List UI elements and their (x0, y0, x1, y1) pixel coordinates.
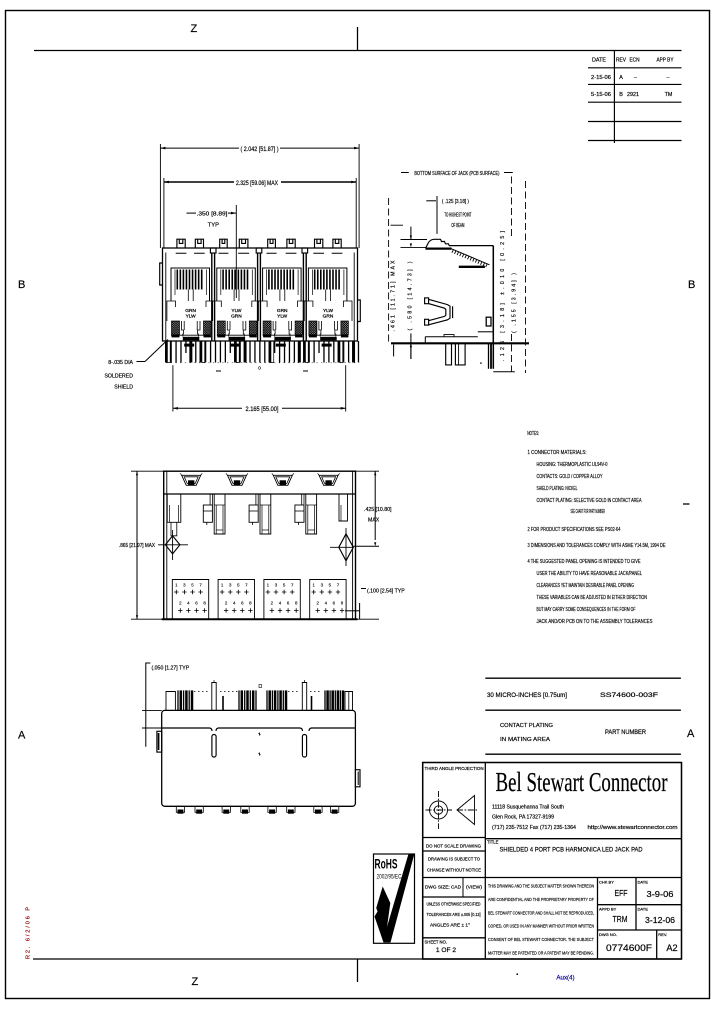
svg-text:YLW: YLW (323, 308, 334, 314)
svg-text:ECN: ECN (630, 58, 640, 64)
svg-text:MAX: MAX (368, 518, 380, 524)
svg-text:SS74600-003F: SS74600-003F (600, 692, 658, 699)
svg-text:4: 4 (187, 601, 190, 606)
svg-text:TOLERANCES ARE ±.005 [0.13]: TOLERANCES ARE ±.005 [0.13] (427, 912, 481, 917)
svg-text:B: B (688, 279, 695, 291)
svg-text:A: A (18, 730, 26, 742)
svg-text:1 OF 2: 1 OF 2 (436, 947, 456, 954)
svg-text:GRN: GRN (323, 314, 334, 320)
svg-text:4: 4 (233, 601, 236, 606)
svg-text:TM: TM (665, 92, 673, 98)
svg-text:SOLDERED: SOLDERED (104, 374, 133, 380)
svg-text:http://www.stewartconnector.co: http://www.stewartconnector.com (588, 825, 679, 831)
svg-text:3-9-06: 3-9-06 (647, 890, 674, 899)
svg-text:–: – (667, 75, 670, 81)
svg-text:2002/95/EC: 2002/95/EC (377, 875, 403, 881)
svg-text:THIRD ANGLE PROJECTION: THIRD ANGLE PROJECTION (425, 766, 484, 771)
svg-text:SHIELD PLATING: NICKEL: SHIELD PLATING: NICKEL (537, 486, 578, 492)
svg-text:IN MATING AREA: IN MATING AREA (500, 737, 550, 743)
svg-text:COPIED, OR USED IN ANY MANNER: COPIED, OR USED IN ANY MANNER WITHOUT PR… (488, 924, 594, 929)
svg-text:4: 4 (279, 601, 282, 606)
svg-text:SHIELD: SHIELD (114, 385, 133, 391)
svg-text:6: 6 (241, 601, 244, 606)
svg-text:YLW: YLW (277, 314, 288, 320)
svg-text:UNLESS OTHERWISE SPECIFIED: UNLESS OTHERWISE SPECIFIED (427, 902, 481, 907)
svg-text:0: 0 (258, 366, 261, 371)
svg-text:EFF: EFF (615, 889, 628, 898)
svg-text:RoHS: RoHS (375, 857, 398, 872)
svg-text:ARE CONFIDENTIAL AND THE PROPR: ARE CONFIDENTIAL AND THE PROPRIETARY PRO… (488, 897, 594, 902)
svg-text:(VIEW): (VIEW) (466, 885, 482, 891)
svg-text:DATE: DATE (638, 907, 649, 912)
svg-text:8-.035 DIA: 8-.035 DIA (108, 360, 133, 366)
svg-text:APPD BY: APPD BY (599, 907, 617, 912)
svg-text:BEL STEWART CONNECTOR AND SHAL: BEL STEWART CONNECTOR AND SHALL NOT BE R… (488, 910, 594, 915)
svg-text:1: 1 (312, 583, 315, 588)
svg-text:Glen Rock, PA 17327-9199: Glen Rock, PA 17327-9199 (492, 815, 554, 821)
svg-text:7: 7 (291, 583, 294, 588)
svg-text:4: 4 (325, 601, 328, 606)
svg-text:7: 7 (199, 583, 202, 588)
svg-text:3-12-06: 3-12-06 (645, 916, 675, 925)
svg-text:(.100 [2.54] TYP: (.100 [2.54] TYP (367, 589, 405, 595)
svg-text:NOTES:: NOTES: (527, 431, 539, 437)
svg-text:BOTTOM SURFACE OF JACK (PCB SU: BOTTOM SURFACE OF JACK (PCB SURFACE) (414, 171, 499, 177)
svg-text:A2: A2 (666, 943, 677, 953)
svg-text:A: A (687, 728, 695, 740)
svg-text:2.165 [55.00]: 2.165 [55.00] (246, 407, 279, 413)
svg-text:B: B (619, 92, 623, 98)
svg-text:.350 [8.89]: .350 [8.89] (197, 212, 228, 218)
svg-text:30 MICRO-INCHES [0.75um]: 30 MICRO-INCHES [0.75um] (487, 693, 567, 699)
svg-text:USER THE ABILITY TO HAVE REASO: USER THE ABILITY TO HAVE REASONABLE JACK… (537, 571, 643, 577)
svg-text:1: 1 (175, 583, 178, 588)
svg-text:2-15-06: 2-15-06 (591, 75, 611, 81)
svg-text:5: 5 (191, 583, 194, 588)
svg-text:MATTER MAY BE PATENTED OR A PA: MATTER MAY BE PATENTED OR A PATENT MAY B… (488, 951, 594, 956)
svg-text:CONSENT OF BEL STEWART CONNECT: CONSENT OF BEL STEWART CONNECTOR. THE SU… (488, 937, 594, 942)
svg-text:SHIELDED 4 PORT PCB HARMONICA: SHIELDED 4 PORT PCB HARMONICA LED JACK P… (500, 847, 643, 854)
svg-text:REV.: REV. (658, 932, 667, 937)
svg-text:3: 3 (183, 583, 186, 588)
svg-text:7: 7 (245, 583, 248, 588)
svg-text:8: 8 (203, 601, 206, 606)
svg-text:SEE CHART FOR PART NUMBER: SEE CHART FOR PART NUMBER (571, 509, 606, 515)
svg-text:TITLE: TITLE (487, 840, 499, 845)
svg-text:Aux(4): Aux(4) (556, 975, 574, 982)
svg-text:( 2.042 [51.87] ): ( 2.042 [51.87] ) (241, 147, 279, 153)
svg-text:R2. 6/2/06 P: R2. 6/2/06 P (26, 907, 32, 959)
svg-text:DRAWING IS SUBJECT TO: DRAWING IS SUBJECT TO (428, 857, 480, 863)
svg-text:2 FOR PRODUCT SPECIFICATIONS: 2 FOR PRODUCT SPECIFICATIONS SEE PS02-64 (528, 527, 621, 533)
svg-text:GRN: GRN (185, 308, 196, 314)
svg-text:DATE: DATE (638, 880, 649, 885)
svg-text:CONTACT PLATING: SELECTIVE GOL: CONTACT PLATING: SELECTIVE GOLD IN CONTA… (537, 498, 642, 504)
svg-text:YLW: YLW (186, 314, 197, 320)
svg-text:8: 8 (341, 601, 344, 606)
svg-text:8: 8 (295, 601, 298, 606)
svg-text:THESE VARIABLES CAN BE ADJUSTE: THESE VARIABLES CAN BE ADJUSTED IN EITHE… (537, 595, 648, 601)
svg-text:THIS DRAWING AND THE SUBJECT M: THIS DRAWING AND THE SUBJECT MATTER SHOW… (488, 884, 594, 889)
svg-text:DWG NO.: DWG NO. (599, 932, 617, 937)
svg-text:CHANGE WITHOUT NOTICE: CHANGE WITHOUT NOTICE (427, 868, 481, 874)
svg-text:11118 Susquehanna Trail South: 11118 Susquehanna Trail South (492, 805, 564, 811)
svg-text:APP BY: APP BY (657, 58, 675, 64)
svg-text:2.325 [59.06] MAX: 2.325 [59.06] MAX (236, 181, 278, 187)
svg-text:B: B (18, 279, 25, 291)
svg-text:1 CONNECTOR MATERIALS:: 1 CONNECTOR MATERIALS: (528, 450, 587, 456)
svg-text:A: A (619, 75, 623, 81)
svg-text:( .125 [3.18] ): ( .125 [3.18] ) (442, 199, 469, 205)
svg-text:(717) 235-7512 Fax (717) 235: (717) 235-7512 Fax (717) 235-1364 (492, 825, 576, 831)
svg-text:TRM: TRM (613, 915, 628, 924)
svg-text:OF BEAM: OF BEAM (451, 223, 464, 229)
svg-text:3: 3 (229, 583, 232, 588)
svg-text:8: 8 (249, 601, 252, 606)
svg-text:TO HIGHEST POINT: TO HIGHEST POINT (444, 212, 471, 218)
svg-text:6: 6 (333, 601, 336, 606)
svg-text:GRN: GRN (277, 308, 288, 314)
svg-text:2: 2 (271, 601, 274, 606)
svg-text:.865 [21.97] MAX: .865 [21.97] MAX (119, 543, 155, 549)
svg-text:2: 2 (225, 601, 228, 606)
svg-text:Bel Stewart Connector: Bel Stewart Connector (496, 767, 668, 797)
svg-text:DATE: DATE (592, 58, 606, 64)
svg-text:CHK BY: CHK BY (599, 880, 614, 885)
svg-text:–: – (634, 75, 637, 81)
svg-text:BUT MAY CARRY SOME CONSEQUENCE: BUT MAY CARRY SOME CONSEQUENCES IN THE F… (537, 607, 636, 613)
svg-text:REV: REV (616, 58, 627, 64)
svg-text:3: 3 (321, 583, 324, 588)
svg-text:JACK AND/OR PCB ON TO THE ASSE: JACK AND/OR PCB ON TO THE ASSEMBLY TOLER… (537, 619, 653, 625)
svg-text:CONTACTS: GOLD / COPPER ALLOY: CONTACTS: GOLD / COPPER ALLOY (537, 474, 603, 480)
svg-text:CONTACT PLATING: CONTACT PLATING (500, 723, 553, 729)
svg-text:CLEARANCES YET MAINTAIN DESIRA: CLEARANCES YET MAINTAIN DESIRABLE PANEL … (537, 583, 635, 589)
svg-text:5-15-06: 5-15-06 (591, 92, 611, 98)
svg-text:7: 7 (337, 583, 340, 588)
svg-text:TYP: TYP (208, 223, 219, 229)
svg-text:4 THE SUGGESTED PANEL OPENING: 4 THE SUGGESTED PANEL OPENING IS INTENDE… (528, 559, 641, 565)
svg-text:2921: 2921 (627, 92, 639, 98)
svg-text:.461 [11.71] MAX: .461 [11.71] MAX (391, 260, 397, 332)
svg-text:5: 5 (237, 583, 240, 588)
svg-text:2: 2 (316, 601, 319, 606)
svg-text:( .580 [14.73] ): ( .580 [14.73] ) (408, 261, 414, 330)
svg-text:SHEET NO.: SHEET NO. (425, 940, 448, 945)
svg-text:.425 [10.80]: .425 [10.80] (364, 507, 392, 513)
svg-text:DO NOT SCALE DRAWING: DO NOT SCALE DRAWING (426, 844, 481, 850)
svg-text:1: 1 (221, 583, 224, 588)
svg-text:GRN: GRN (231, 314, 242, 320)
svg-text:DWG SIZE: CAD: DWG SIZE: CAD (425, 885, 462, 891)
svg-text:Z: Z (192, 976, 199, 988)
svg-text:3 DIMENSIONS AND TOLERANCES C: 3 DIMENSIONS AND TOLERANCES COMPLY WITH … (528, 543, 666, 549)
svg-text:1: 1 (267, 583, 270, 588)
svg-text:HOUSING: THERMOPLASTIC UL94V-: HOUSING: THERMOPLASTIC UL94V-0 (537, 462, 608, 468)
svg-text:6: 6 (287, 601, 290, 606)
svg-text:Z: Z (191, 23, 198, 35)
svg-text:( .155 [3.94] ): ( .155 [3.94] ) (512, 273, 518, 333)
svg-text:.125 [3.18] ±.010 [0.25]: .125 [3.18] ±.010 [0.25] (500, 230, 506, 361)
svg-text:6: 6 (195, 601, 198, 606)
svg-text:0774600F: 0774600F (606, 943, 652, 953)
svg-text:5: 5 (329, 583, 332, 588)
svg-text:PART NUMBER: PART NUMBER (605, 730, 647, 736)
svg-text:3: 3 (275, 583, 278, 588)
svg-text:(.050 [1.27] TYP: (.050 [1.27] TYP (152, 666, 190, 672)
svg-text:2: 2 (179, 601, 182, 606)
svg-text:YLW: YLW (231, 308, 242, 314)
svg-text:5: 5 (283, 583, 286, 588)
svg-text:ANGLES ARE ± 1°: ANGLES ARE ± 1° (430, 923, 470, 928)
